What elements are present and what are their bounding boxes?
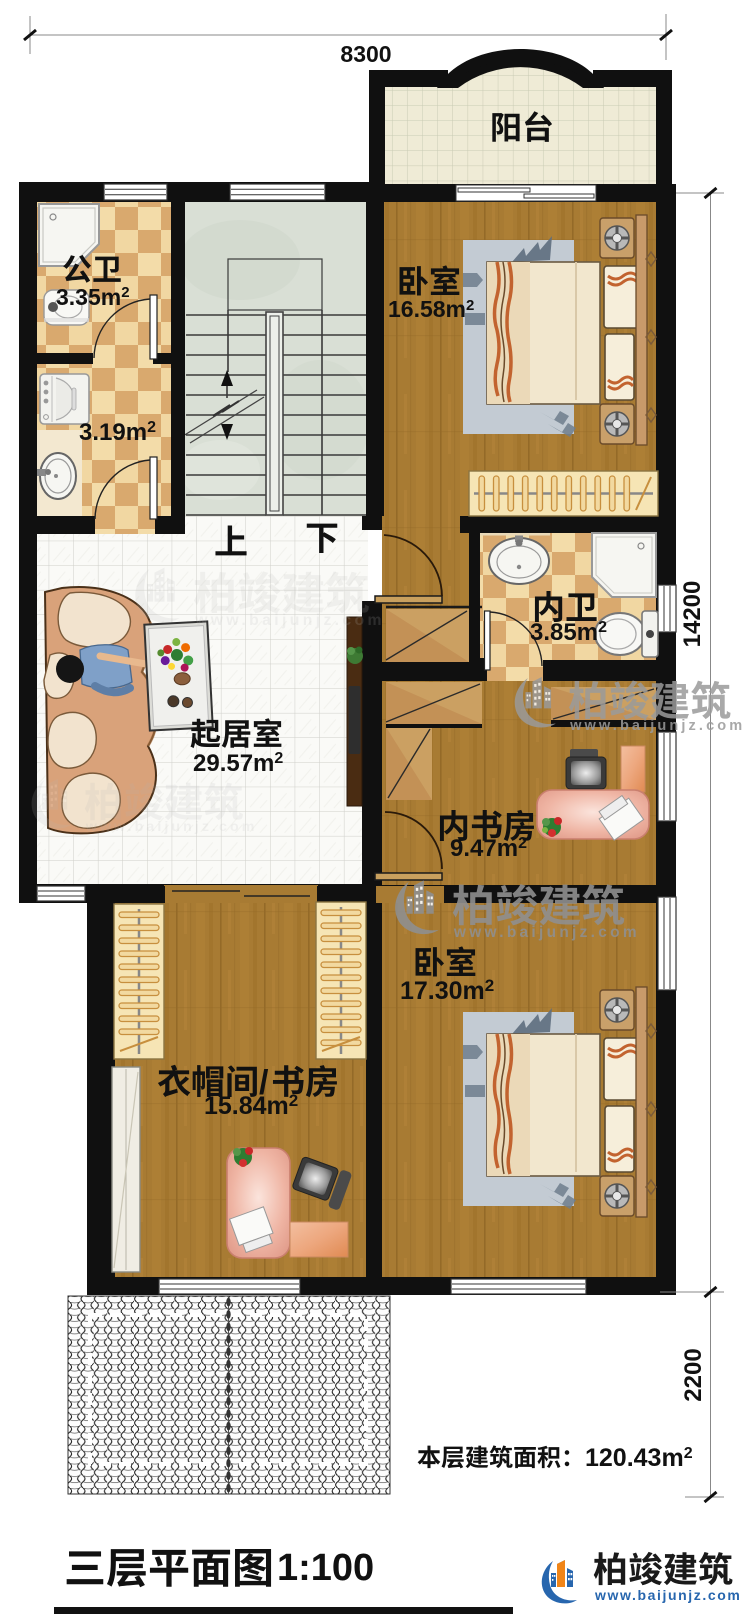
svg-text:29.57m2: 29.57m2 [193, 750, 283, 777]
svg-text:www.baijunjz.com: www.baijunjz.com [594, 1587, 741, 1603]
svg-text:16.58m2: 16.58m2 [388, 296, 474, 322]
svg-text:2200: 2200 [680, 1348, 707, 1401]
svg-text:120.43m2: 120.43m2 [585, 1444, 693, 1472]
svg-text:1:100: 1:100 [277, 1547, 374, 1589]
svg-text:www.baijunjz.com: www.baijunjz.com [569, 718, 745, 734]
svg-text:www.baijunjz.com: www.baijunjz.com [85, 819, 258, 835]
svg-text:www.baijunjz.com: www.baijunjz.com [194, 612, 385, 629]
svg-text:3.19m2: 3.19m2 [79, 419, 156, 446]
svg-text:17.30m2: 17.30m2 [400, 976, 494, 1005]
svg-text:15.84m2: 15.84m2 [204, 1091, 298, 1120]
svg-text:9.47m2: 9.47m2 [450, 835, 527, 862]
svg-text:8300: 8300 [340, 41, 391, 67]
svg-text:14200: 14200 [679, 581, 706, 648]
svg-text:3.85m2: 3.85m2 [530, 619, 607, 646]
svg-text:3.35m2: 3.35m2 [56, 284, 130, 310]
svg-text:www.baijunjz.com: www.baijunjz.com [453, 924, 640, 941]
